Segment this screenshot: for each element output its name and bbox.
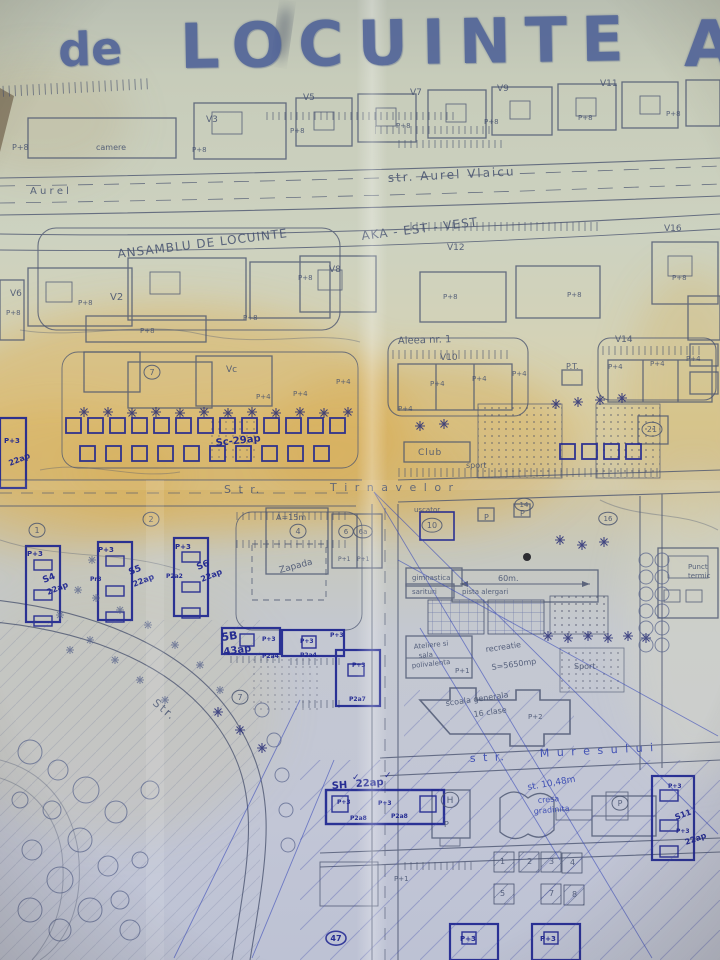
scanned-blueprint-map: P+8camereV3P+8V5V7V9V11P+8P+8P+8P+8P+8A … bbox=[0, 0, 720, 960]
map-shape bbox=[0, 0, 720, 960]
map-canvas: P+8camereV3P+8V5V7V9V11P+8P+8P+8P+8P+8A … bbox=[0, 0, 720, 960]
scan-artifacts bbox=[0, 0, 720, 960]
